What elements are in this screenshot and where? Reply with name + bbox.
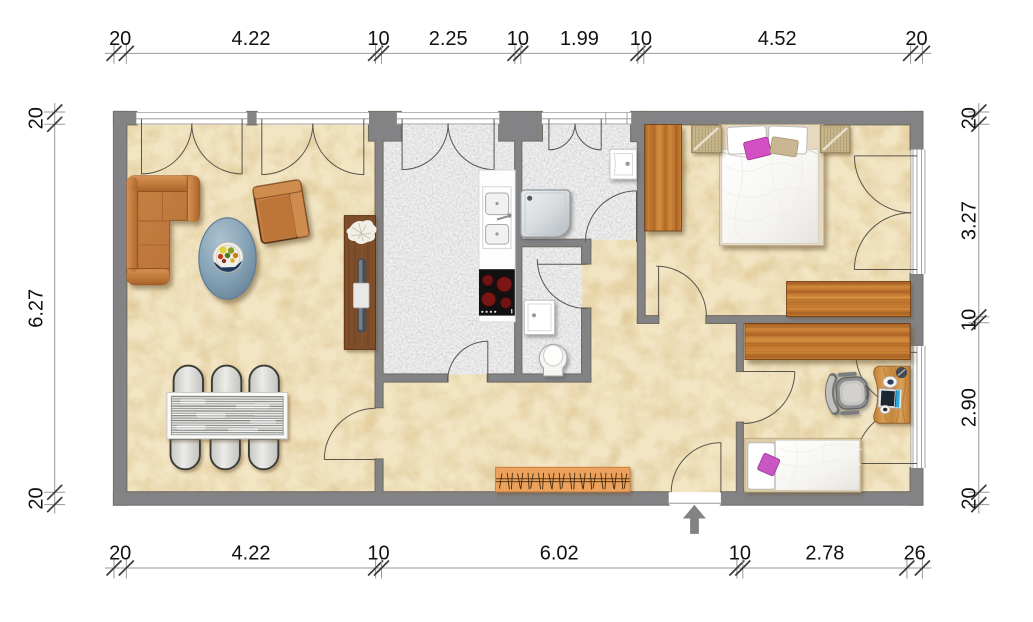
svg-text:10: 10 [630,28,652,50]
svg-text:4.22: 4.22 [232,28,271,50]
svg-text:1.99: 1.99 [560,28,599,50]
svg-text:2.25: 2.25 [429,28,468,50]
svg-text:10: 10 [367,543,389,565]
svg-text:26: 26 [904,543,926,565]
svg-text:3.27: 3.27 [959,201,981,240]
svg-text:10: 10 [729,543,751,565]
svg-text:6.02: 6.02 [540,543,579,565]
svg-text:2.90: 2.90 [959,388,981,427]
svg-text:4.52: 4.52 [758,28,797,50]
svg-text:20: 20 [109,28,131,50]
svg-text:20: 20 [109,543,131,565]
svg-text:4.22: 4.22 [232,543,271,565]
svg-text:20: 20 [905,28,927,50]
svg-text:10: 10 [507,28,529,50]
svg-text:10: 10 [959,309,981,331]
svg-text:2.78: 2.78 [805,543,844,565]
svg-text:6.27: 6.27 [26,289,48,328]
svg-text:20: 20 [26,487,48,509]
svg-text:20: 20 [959,487,981,509]
svg-text:10: 10 [367,28,389,50]
svg-text:20: 20 [26,107,48,129]
svg-text:20: 20 [959,107,981,129]
